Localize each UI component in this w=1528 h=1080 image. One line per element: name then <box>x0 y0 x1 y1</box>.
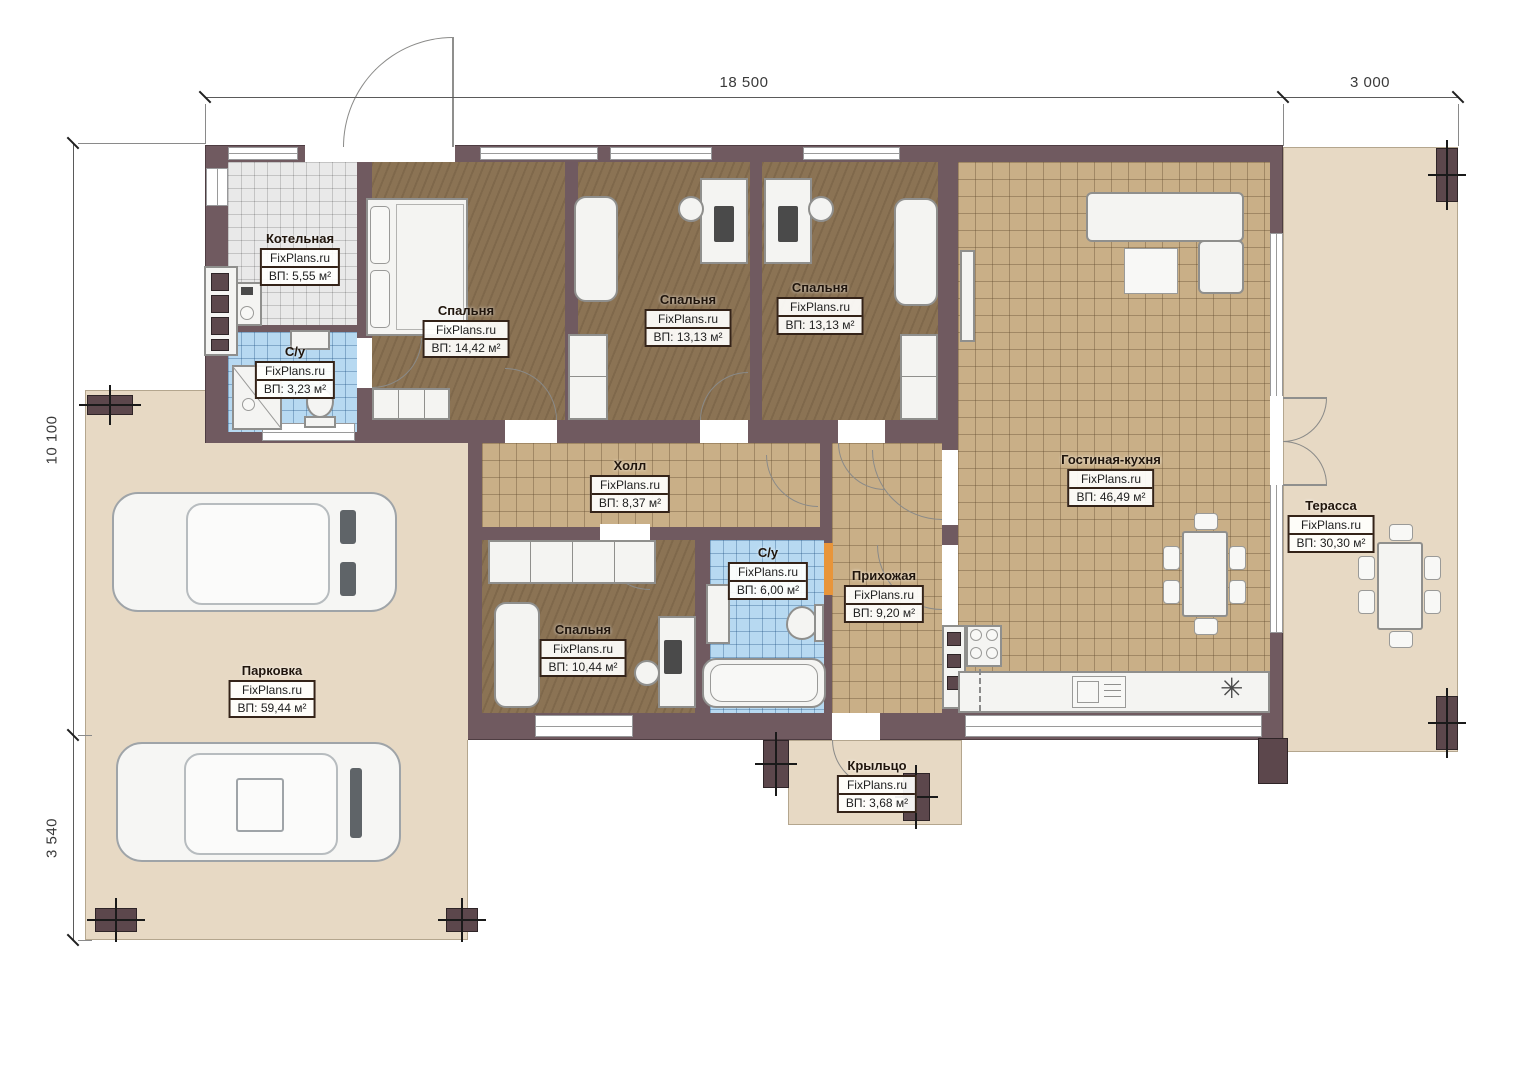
chair <box>1358 556 1375 580</box>
bedroom3-door-opening <box>838 420 885 443</box>
column-tick <box>461 898 463 942</box>
brand-watermark: FixPlans.ru <box>779 299 862 315</box>
column-tick <box>1446 688 1448 758</box>
room-label-boiler: Котельная FixPlans.ru ВП: 5,55 м² <box>260 231 340 286</box>
brand-watermark: FixPlans.ru <box>730 564 806 580</box>
office-chair <box>634 660 660 686</box>
burner <box>970 647 982 659</box>
brand-watermark: FixPlans.ru <box>425 322 508 338</box>
chair <box>1194 618 1218 635</box>
extension-line <box>78 143 205 144</box>
room-name: С/у <box>728 545 808 560</box>
room-area: ВП: 46,49 м² <box>1070 487 1153 505</box>
porch-door-opening <box>832 713 880 740</box>
bathroom2-door-highlight <box>824 543 833 595</box>
floor-plan: ✳ Котельная FixPlans.ru ВП: 5,55 м² <box>0 0 1528 1080</box>
brand-watermark: FixPlans.ru <box>231 682 314 698</box>
room-label-bathroom2: С/у FixPlans.ru ВП: 6,00 м² <box>728 545 808 600</box>
room-name: Крыльцо <box>837 758 917 773</box>
wardrobe <box>372 388 450 420</box>
room-name: Спальня <box>423 303 510 318</box>
brand-watermark: FixPlans.ru <box>1290 517 1373 533</box>
room-area: ВП: 10,44 м² <box>542 657 625 675</box>
wardrobe <box>568 334 608 420</box>
dimension-line-top <box>205 97 1458 98</box>
wardrobe-divider <box>424 388 425 420</box>
room-label-bedroom1: Спальня FixPlans.ru ВП: 14,42 м² <box>423 303 510 358</box>
room-label-bedroom3: Спальня FixPlans.ru ВП: 13,13 м² <box>777 280 864 335</box>
wardrobe-divider <box>398 388 399 420</box>
kitchen-sink-bowl <box>1077 681 1099 703</box>
burner <box>986 647 998 659</box>
room-name: Спальня <box>540 622 627 637</box>
computer-monitor <box>778 206 798 242</box>
office-chair <box>678 196 704 222</box>
bedroom4-door-opening <box>600 524 650 540</box>
column <box>1258 738 1288 784</box>
terrace-door-leaf-upper <box>1283 397 1327 399</box>
window <box>535 715 633 737</box>
wardrobe-divider <box>568 376 608 377</box>
chair <box>1229 546 1246 570</box>
extension-line <box>78 940 92 941</box>
corner-sofa-arm <box>1198 240 1244 294</box>
burner <box>970 629 982 641</box>
room-label-parking: Парковка FixPlans.ru ВП: 59,44 м² <box>229 663 316 718</box>
wardrobe-divider <box>530 540 531 584</box>
computer-monitor <box>664 640 682 674</box>
window <box>228 147 298 160</box>
drainer-line <box>1104 696 1121 697</box>
bedroom1-door-opening <box>505 420 557 443</box>
corner-sofa <box>1086 192 1244 242</box>
chair <box>1389 524 1413 541</box>
tv-unit <box>960 250 975 342</box>
chair <box>1163 580 1180 604</box>
room-name: Парковка <box>229 663 316 678</box>
window <box>610 147 712 160</box>
pillow <box>370 270 390 328</box>
brand-watermark: FixPlans.ru <box>262 250 338 266</box>
chair <box>1424 556 1441 580</box>
room-name: Гостиная-кухня <box>1061 452 1161 467</box>
room-label-bedroom2: Спальня FixPlans.ru ВП: 13,13 м² <box>645 292 732 347</box>
room-label-hall: Холл FixPlans.ru ВП: 8,37 м² <box>590 458 670 513</box>
counter-divider <box>979 669 981 711</box>
column-tick <box>115 898 117 942</box>
column-tick <box>1446 140 1448 210</box>
toilet-tank <box>814 604 824 642</box>
extension-line <box>1458 104 1459 146</box>
room-area: ВП: 30,30 м² <box>1290 533 1373 551</box>
oven <box>947 632 961 646</box>
room-name: Котельная <box>260 231 340 246</box>
dimension-line-left <box>73 143 74 940</box>
coffee-table <box>1124 248 1178 294</box>
room-name: Спальня <box>645 292 732 307</box>
room-name: Терасса <box>1288 498 1375 513</box>
room-label-porch: Крыльцо FixPlans.ru ВП: 3,68 м² <box>837 758 917 813</box>
dimension-label-top-2: 3 000 <box>1350 74 1390 91</box>
room-area: ВП: 59,44 м² <box>231 698 314 716</box>
entrance-door-opening <box>305 145 455 162</box>
bathroom-sink <box>706 584 730 644</box>
room-name: Прихожая <box>844 568 924 583</box>
chair <box>1163 546 1180 570</box>
window <box>1270 483 1283 633</box>
terrace-door-leaf-lower <box>1283 484 1327 486</box>
car <box>112 492 397 612</box>
car <box>116 742 401 862</box>
wardrobe-divider <box>900 376 938 377</box>
terrace-table <box>1377 542 1423 630</box>
dining-table <box>1182 531 1228 617</box>
brand-watermark: FixPlans.ru <box>592 477 668 493</box>
meter-box <box>211 339 229 351</box>
room-label-living-kitchen: Гостиная-кухня FixPlans.ru ВП: 46,49 м² <box>1061 452 1161 507</box>
extension-line <box>205 104 206 144</box>
extension-line <box>78 735 92 736</box>
dimension-label-left-2: 3 540 <box>44 818 61 858</box>
wardrobe-divider <box>572 540 573 584</box>
room-area: ВП: 6,00 м² <box>730 580 806 598</box>
chair <box>1229 580 1246 604</box>
living-door-opening <box>942 450 958 525</box>
chair <box>1194 513 1218 530</box>
interior-door-opening <box>357 338 372 388</box>
room-area: ВП: 8,37 м² <box>592 493 668 511</box>
sofa <box>574 196 618 302</box>
room-area: ВП: 14,42 м² <box>425 338 508 356</box>
toilet-tank <box>304 416 336 428</box>
room-area: ВП: 9,20 м² <box>846 603 922 621</box>
room-area: ВП: 5,55 м² <box>262 266 338 284</box>
fridge-icon: ✳ <box>1220 672 1243 705</box>
entrance-door-arc <box>343 37 453 147</box>
office-chair <box>808 196 834 222</box>
column-tick <box>109 385 111 425</box>
room-area: ВП: 13,13 м² <box>779 315 862 333</box>
terrace-door-opening <box>1270 396 1283 485</box>
window <box>803 147 900 160</box>
room-name: Спальня <box>777 280 864 295</box>
burner <box>986 629 998 641</box>
chair <box>1424 590 1441 614</box>
chair <box>1358 590 1375 614</box>
window <box>965 715 1262 737</box>
sofa <box>894 198 938 306</box>
room-area: ВП: 13,13 м² <box>647 327 730 345</box>
chair <box>1389 631 1413 648</box>
pillow <box>370 206 390 264</box>
meter-box <box>211 295 229 313</box>
computer-monitor <box>714 206 734 242</box>
kitchen-door-opening <box>942 545 958 625</box>
column-tick <box>775 732 777 796</box>
window <box>480 147 598 160</box>
room-label-bedroom4: Спальня FixPlans.ru ВП: 10,44 м² <box>540 622 627 677</box>
dimension-label-top-1: 18 500 <box>720 74 769 91</box>
bathtub-inner <box>710 664 818 702</box>
wardrobe <box>900 334 938 420</box>
dimension-label-left-1: 10 100 <box>44 416 61 465</box>
meter-box <box>211 317 229 335</box>
sofa <box>494 602 540 708</box>
wardrobe-divider <box>614 540 615 584</box>
window <box>1270 233 1283 398</box>
brand-watermark: FixPlans.ru <box>257 363 333 379</box>
room-label-terrace: Терасса FixPlans.ru ВП: 30,30 м² <box>1288 498 1375 553</box>
room-label-entry: Прихожая FixPlans.ru ВП: 9,20 м² <box>844 568 924 623</box>
boiler-display <box>241 287 253 295</box>
room-area: ВП: 3,68 м² <box>839 793 915 811</box>
shower-drain <box>242 398 255 411</box>
boiler-dial <box>240 306 254 320</box>
room-label-bathroom1: С/у FixPlans.ru ВП: 3,23 м² <box>255 344 335 399</box>
brand-watermark: FixPlans.ru <box>839 777 915 793</box>
entrance-door-leaf <box>452 37 454 147</box>
meter-box <box>211 273 229 291</box>
brand-watermark: FixPlans.ru <box>542 641 625 657</box>
window <box>206 168 228 206</box>
room-area: ВП: 3,23 м² <box>257 379 333 397</box>
oven <box>947 654 961 668</box>
room-name: С/у <box>255 344 335 359</box>
brand-watermark: FixPlans.ru <box>1070 471 1153 487</box>
bedroom2-door-opening <box>700 420 748 443</box>
drainer-line <box>1104 684 1121 685</box>
brand-watermark: FixPlans.ru <box>846 587 922 603</box>
brand-watermark: FixPlans.ru <box>647 311 730 327</box>
room-name: Холл <box>590 458 670 473</box>
extension-line <box>1283 104 1284 146</box>
drainer-line <box>1104 690 1121 691</box>
